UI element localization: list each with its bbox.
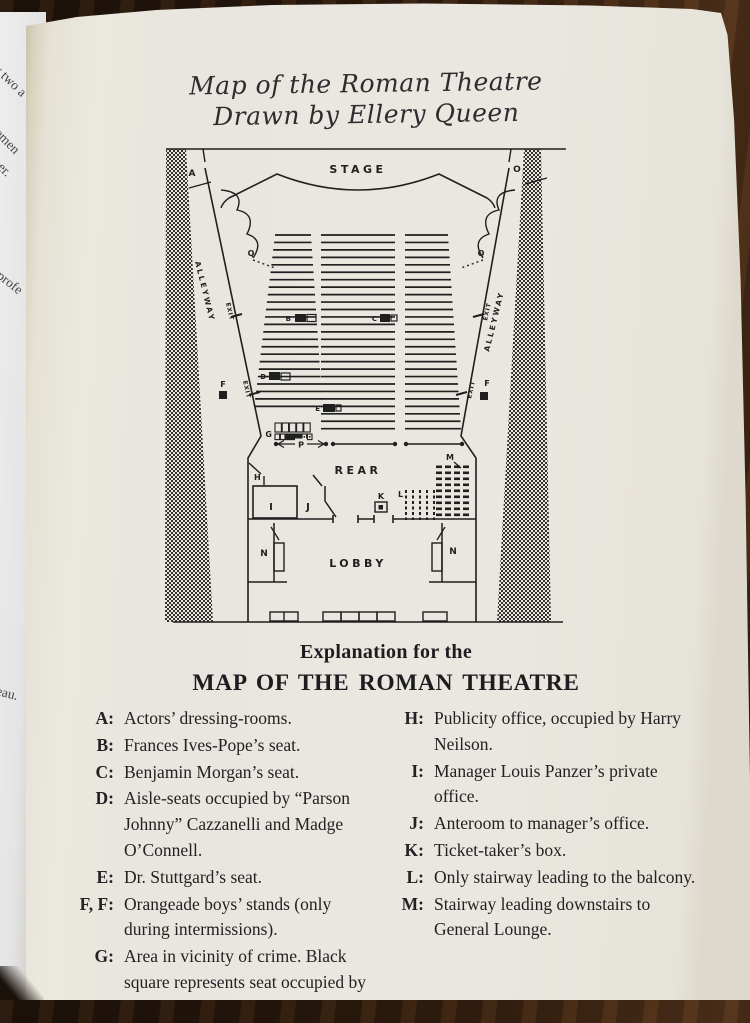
- legend-key: L:: [366, 865, 434, 891]
- explanation-title: MAP OF THE ROMAN THEATRE: [86, 670, 686, 697]
- right-window-label: N: [449, 547, 457, 557]
- right-door-swing: [437, 527, 445, 540]
- seat-e-black-square: [323, 404, 335, 412]
- anteroom-label: J: [305, 502, 310, 513]
- right-outer-wall-hatch: [497, 149, 551, 622]
- theatre-map-figure: STAGE Q Q A O ALLEYWAY ALLEYWAY EXIT EXI…: [165, 146, 569, 624]
- legend-entry-k: K:Ticket-taker’s box.: [366, 838, 696, 864]
- exit-label: EXIT: [466, 380, 477, 399]
- explanation-heading: Explanation for the: [86, 641, 686, 664]
- legend-entry-f: F, F:Orangeade boys’ stands (only during…: [56, 892, 374, 944]
- ticket-taker-box-label: K: [378, 492, 385, 501]
- crime-area-label: G: [265, 430, 272, 439]
- legend-key: G:: [56, 944, 124, 1021]
- seat-e-label: E: [315, 405, 320, 413]
- stage-wing-hooks: [221, 198, 495, 208]
- legend-entry-b: B:Frances Ives-Pope’s seat.: [56, 733, 374, 759]
- legend-text: Actors’ dressing-rooms.: [124, 706, 374, 732]
- right-box-dotted-line: [461, 260, 483, 268]
- left-box-label: Q: [248, 249, 255, 258]
- legend-key: D:: [56, 786, 124, 863]
- legend-key: B:: [56, 733, 124, 759]
- legend-text: Ticket-taker’s box.: [434, 838, 696, 864]
- stairway-down-label: M: [446, 453, 454, 462]
- legend-entry-e: E:Dr. Stuttgard’s seat.: [56, 865, 374, 891]
- legend-entry-a: A:Actors’ dressing-rooms.: [56, 706, 374, 732]
- legend-text: Benjamin Morgan’s seat.: [124, 760, 374, 786]
- legend-text: Orangeade boys’ stands (only during inte…: [124, 892, 374, 944]
- legend-key: A:: [56, 706, 124, 732]
- legend-right-column: H:Publicity office, occupied by Harry Ne…: [366, 706, 696, 944]
- legend-key: H:: [366, 706, 434, 758]
- legend-text: Manager Louis Panzer’s private office.: [434, 759, 696, 811]
- middle-seat-section: [321, 235, 395, 429]
- legend-text: Only stairway leading to the balcony.: [434, 865, 696, 891]
- legend-entry-l: L:Only stairway leading to the balcony.: [366, 865, 696, 891]
- right-orangeade-stand-label: F: [484, 379, 489, 388]
- left-orangeade-stand-square: [219, 391, 227, 399]
- seat-d-label: D: [260, 373, 266, 381]
- manager-office-room: [253, 486, 297, 518]
- legend-key: F, F:: [56, 892, 124, 944]
- photo-of-book-page: { "book_page": { "handwritten_title_line…: [0, 0, 750, 1000]
- top-right-label: O: [513, 165, 521, 175]
- last-row-line-right: [404, 442, 464, 446]
- right-box-seats-outline: [478, 190, 515, 258]
- legend-key: I:: [366, 759, 434, 811]
- stage-front-curve: [229, 174, 487, 198]
- seat-b-black-square: [295, 314, 306, 322]
- facing-page-text-fragment: reau.: [0, 682, 20, 704]
- crime-area-seat-grid: [275, 423, 312, 440]
- anteroom-walls: [313, 475, 336, 517]
- left-window-label: N: [260, 549, 268, 559]
- legend-text: Stairway leading downstairs to General L…: [434, 892, 696, 944]
- last-row-line-p: P: [274, 439, 328, 450]
- legend-entry-i: I:Manager Louis Panzer’s private office.: [366, 759, 696, 811]
- rear-area-label: REAR: [335, 464, 382, 477]
- legend-entry-d: D:Aisle-seats occupied by “Parson Johnny…: [56, 786, 374, 863]
- legend-entry-c: C:Benjamin Morgan’s seat.: [56, 760, 374, 786]
- right-box-label: Q: [478, 249, 485, 258]
- explanation-heading-block: Explanation for the MAP OF THE ROMAN THE…: [86, 641, 686, 697]
- legend-entry-g: G:Area in vicinity of crime. Black squar…: [56, 944, 374, 1021]
- publicity-office-label: H: [254, 473, 261, 482]
- table-shadow-bottom-left: [0, 966, 44, 1000]
- legend-entry-h: H:Publicity office, occupied by Harry Ne…: [366, 706, 696, 758]
- left-outer-wall-hatch: [165, 149, 213, 622]
- legend-key: E:: [56, 865, 124, 891]
- seat-c-label: C: [372, 315, 377, 323]
- legend-key: C:: [56, 760, 124, 786]
- facing-page-text-fragment: or two a: [0, 58, 30, 100]
- dressing-rooms-label: A: [189, 169, 196, 179]
- right-orangeade-stand-square: [480, 392, 488, 400]
- legend-text: Aisle-seats occupied by “Parson Johnny” …: [124, 786, 374, 863]
- legend-key: K:: [366, 838, 434, 864]
- handwritten-map-title: Map of the Roman Theatre Drawn by Ellery…: [116, 65, 617, 134]
- legend-key: M:: [366, 892, 434, 944]
- legend-key: J:: [366, 811, 434, 837]
- right-seat-section: [405, 235, 461, 429]
- seat-c-black-square: [380, 314, 390, 322]
- ticket-taker-box-mark: [379, 505, 384, 510]
- row-p-label: P: [298, 441, 304, 450]
- facing-page-text-fragment: a profe: [0, 262, 26, 298]
- manager-office-label: I: [269, 502, 273, 513]
- facing-page-text-fragment: gentlemen: [0, 106, 23, 158]
- seat-b-label: B: [286, 315, 291, 323]
- legend-text: Anteroom to manager’s office.: [434, 811, 696, 837]
- legend-text: Dr. Stuttgard’s seat.: [124, 865, 374, 891]
- lobby-area-label: LOBBY: [329, 557, 387, 570]
- legend-text: Area in vicinity of crime. Black square …: [124, 944, 374, 1021]
- legend-text: Publicity office, occupied by Harry Neil…: [434, 706, 696, 758]
- legend-entry-j: J:Anteroom to manager’s office.: [366, 811, 696, 837]
- book-page: Map of the Roman Theatre Drawn by Ellery…: [26, 0, 750, 1000]
- left-window-box: [274, 543, 284, 571]
- lobby-entrance-doors: [270, 612, 447, 621]
- balcony-stairway-label: L: [398, 490, 403, 499]
- stage-label: STAGE: [329, 163, 386, 176]
- left-door-swing: [271, 527, 279, 540]
- theatre-map-svg: STAGE Q Q A O ALLEYWAY ALLEYWAY EXIT EXI…: [165, 146, 569, 624]
- stairway-down-steps: [436, 464, 470, 518]
- last-row-line-middle: [331, 442, 397, 446]
- balcony-stairway-steps: [406, 490, 434, 520]
- right-window-box: [432, 543, 442, 571]
- seat-c-open-square: [391, 315, 397, 321]
- seat-b-open-square: [307, 315, 316, 322]
- left-orangeade-stand-label: F: [220, 380, 225, 389]
- legend-left-column: A:Actors’ dressing-rooms. B:Frances Ives…: [56, 706, 374, 1023]
- seat-d-black-square: [269, 372, 280, 380]
- left-alleyway-label: ALLEYWAY: [193, 260, 217, 322]
- legend-entry-m: M:Stairway leading downstairs to General…: [366, 892, 696, 944]
- legend-text: Frances Ives-Pope’s seat.: [124, 733, 374, 759]
